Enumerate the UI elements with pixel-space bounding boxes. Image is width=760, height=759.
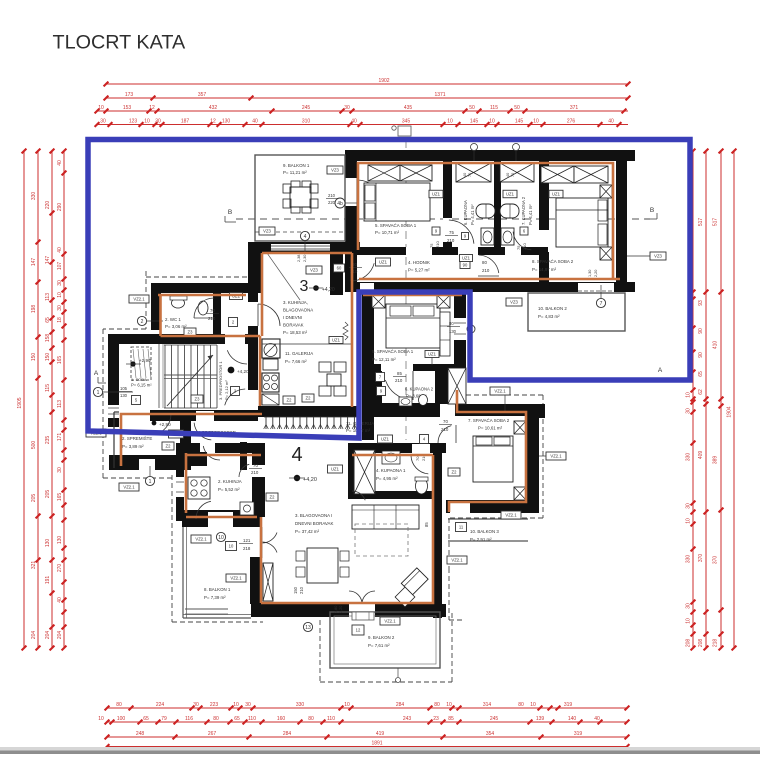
svg-text:370: 370 xyxy=(713,556,719,565)
svg-text:158: 158 xyxy=(45,334,51,343)
svg-text:435: 435 xyxy=(404,105,413,111)
svg-text:210: 210 xyxy=(208,316,216,321)
svg-text:8. SPAVAĆA SOBA 2: 8. SPAVAĆA SOBA 2 xyxy=(532,259,574,264)
svg-text:150: 150 xyxy=(293,586,298,594)
svg-text:I DNEVNI: I DNEVNI xyxy=(283,315,302,320)
svg-text:432: 432 xyxy=(209,105,218,111)
svg-text:50: 50 xyxy=(514,105,520,111)
svg-text:10. BALKON 3: 10. BALKON 3 xyxy=(470,529,499,534)
svg-text:153: 153 xyxy=(123,105,132,111)
svg-text:P= 10,71 m²: P= 10,71 m² xyxy=(375,230,400,235)
svg-text:198: 198 xyxy=(31,305,37,314)
svg-text:P= 7,66 m²: P= 7,66 m² xyxy=(285,359,307,364)
svg-text:VZ3: VZ3 xyxy=(510,300,518,305)
svg-text:270: 270 xyxy=(57,564,63,573)
svg-text:1: 1 xyxy=(149,479,152,485)
svg-text:P= 7,61 m²: P= 7,61 m² xyxy=(368,643,390,648)
svg-text:284: 284 xyxy=(396,702,405,708)
svg-text:85: 85 xyxy=(424,522,429,527)
svg-text:62: 62 xyxy=(698,389,704,395)
svg-text:204: 204 xyxy=(45,631,51,640)
svg-text:23: 23 xyxy=(433,716,439,722)
svg-text:147: 147 xyxy=(45,256,51,265)
svg-text:10: 10 xyxy=(144,119,150,125)
svg-text:30: 30 xyxy=(245,702,251,708)
svg-text:P= 6,15 m²: P= 6,15 m² xyxy=(131,383,152,388)
svg-text:75: 75 xyxy=(449,230,454,235)
svg-text:218: 218 xyxy=(243,546,251,551)
svg-text:80: 80 xyxy=(482,260,487,265)
svg-text:210: 210 xyxy=(395,378,403,383)
svg-text:165: 165 xyxy=(57,356,63,365)
svg-text:30: 30 xyxy=(57,467,63,473)
svg-text:223: 223 xyxy=(210,702,219,708)
svg-text:10: 10 xyxy=(218,535,224,541)
svg-text:30: 30 xyxy=(100,119,106,125)
svg-text:371: 371 xyxy=(570,105,579,111)
svg-text:10: 10 xyxy=(98,105,104,111)
svg-text:2,38: 2,38 xyxy=(297,255,301,262)
svg-text:7. KUPAONA 2: 7. KUPAONA 2 xyxy=(521,196,526,225)
svg-text:30: 30 xyxy=(344,105,350,111)
svg-text:11. GALERIJA: 11. GALERIJA xyxy=(285,351,313,356)
svg-text:105: 105 xyxy=(120,386,128,391)
svg-text:145: 145 xyxy=(515,119,524,125)
svg-text:224: 224 xyxy=(156,702,165,708)
svg-text:VZ2.1: VZ2.1 xyxy=(230,576,242,581)
svg-text:187: 187 xyxy=(181,119,190,125)
svg-text:100: 100 xyxy=(117,716,126,722)
svg-text:VZ2.1: VZ2.1 xyxy=(451,558,463,563)
svg-text:4. KUPAONA 1: 4. KUPAONA 1 xyxy=(376,468,406,473)
svg-text:248: 248 xyxy=(136,731,145,737)
svg-text:79: 79 xyxy=(161,716,167,722)
svg-text:80: 80 xyxy=(518,702,524,708)
svg-text:3. BLAGOVAONA I: 3. BLAGOVAONA I xyxy=(295,513,332,518)
svg-text:330: 330 xyxy=(296,702,305,708)
svg-text:2. WC 1: 2. WC 1 xyxy=(165,317,181,322)
svg-text:113: 113 xyxy=(45,293,51,301)
svg-text:VZ2.1: VZ2.1 xyxy=(550,454,562,459)
svg-text:30: 30 xyxy=(686,603,692,609)
svg-text:75: 75 xyxy=(429,243,434,248)
svg-text:204: 204 xyxy=(57,631,63,640)
svg-text:90: 90 xyxy=(463,263,468,268)
svg-text:UZ1: UZ1 xyxy=(552,192,561,197)
svg-text:276: 276 xyxy=(567,119,576,125)
svg-text:40: 40 xyxy=(351,119,357,125)
svg-text:500: 500 xyxy=(31,441,37,450)
svg-text:314: 314 xyxy=(483,702,492,708)
svg-text:13: 13 xyxy=(305,625,311,631)
svg-text:330: 330 xyxy=(686,555,692,564)
svg-text:10: 10 xyxy=(446,702,452,708)
svg-text:220: 220 xyxy=(328,200,336,205)
svg-text:VZ2.1: VZ2.1 xyxy=(123,485,135,490)
svg-text:8. BALKON 1: 8. BALKON 1 xyxy=(204,587,231,592)
svg-text:9. BALKON 2: 9. BALKON 2 xyxy=(368,635,395,640)
svg-text:165: 165 xyxy=(57,493,63,502)
svg-text:130: 130 xyxy=(45,539,51,548)
svg-text:90: 90 xyxy=(698,328,704,334)
svg-text:65: 65 xyxy=(234,716,240,722)
svg-text:Z2: Z2 xyxy=(452,470,458,475)
svg-text:VZ3: VZ3 xyxy=(331,168,339,173)
svg-text:P= 12,11 m²: P= 12,11 m² xyxy=(372,357,396,362)
svg-text:UZ1: UZ1 xyxy=(462,256,471,261)
svg-text:30: 30 xyxy=(57,280,63,286)
svg-text:30: 30 xyxy=(686,503,692,509)
svg-text:10: 10 xyxy=(686,518,692,524)
svg-text:267: 267 xyxy=(208,731,217,737)
svg-text:210: 210 xyxy=(251,470,259,475)
svg-text:50: 50 xyxy=(469,105,475,111)
svg-text:517: 517 xyxy=(698,218,704,227)
svg-text:321: 321 xyxy=(31,561,37,570)
svg-text:93: 93 xyxy=(698,300,704,306)
svg-text:+2,90: +2,90 xyxy=(139,358,151,363)
svg-text:10: 10 xyxy=(233,702,239,708)
svg-text:70: 70 xyxy=(511,173,515,177)
svg-text:40: 40 xyxy=(57,597,63,603)
svg-text:VZ3: VZ3 xyxy=(654,254,662,259)
svg-text:245: 245 xyxy=(490,716,499,722)
svg-text:290: 290 xyxy=(57,203,63,212)
svg-text:30: 30 xyxy=(193,702,199,708)
svg-text:BLAGOVAONA: BLAGOVAONA xyxy=(283,308,313,313)
svg-text:130: 130 xyxy=(222,119,231,125)
svg-text:1,30: 1,30 xyxy=(588,270,592,277)
svg-text:210: 210 xyxy=(435,241,440,248)
svg-text:A: A xyxy=(94,370,99,377)
svg-text:419: 419 xyxy=(376,731,385,737)
svg-text:7: 7 xyxy=(600,301,603,307)
svg-text:P= 2,12 m²: P= 2,12 m² xyxy=(224,380,229,400)
svg-text:2. KUHINJA: 2. KUHINJA xyxy=(218,479,242,484)
svg-text:1904: 1904 xyxy=(727,406,733,417)
svg-text:75: 75 xyxy=(516,245,521,250)
svg-text:10: 10 xyxy=(686,392,692,398)
svg-text:10: 10 xyxy=(530,702,536,708)
svg-text:204: 204 xyxy=(31,631,37,640)
svg-text:116: 116 xyxy=(185,716,193,722)
svg-text:90: 90 xyxy=(698,352,704,358)
svg-text:Z3: Z3 xyxy=(188,330,194,335)
svg-text:85: 85 xyxy=(397,371,402,376)
svg-text:UZ1: UZ1 xyxy=(331,467,340,472)
svg-text:1. SOBA: 1. SOBA xyxy=(131,377,147,382)
svg-text:139: 139 xyxy=(536,716,545,722)
svg-text:4. HODNIK: 4. HODNIK xyxy=(408,260,430,265)
svg-text:2,20: 2,20 xyxy=(339,606,343,613)
svg-text:3. KUHINJA,: 3. KUHINJA, xyxy=(283,300,308,305)
svg-text:370: 370 xyxy=(698,554,704,563)
svg-text:191: 191 xyxy=(45,576,51,585)
svg-text:65: 65 xyxy=(45,317,51,323)
svg-text:110: 110 xyxy=(327,716,335,722)
svg-text:UZ1: UZ1 xyxy=(332,338,341,343)
svg-text:319: 319 xyxy=(564,702,573,708)
svg-text:Z2: Z2 xyxy=(306,396,312,401)
svg-text:123: 123 xyxy=(129,119,138,125)
svg-text:40: 40 xyxy=(608,119,614,125)
svg-text:210: 210 xyxy=(482,268,490,273)
svg-text:150: 150 xyxy=(31,353,37,362)
svg-text:80: 80 xyxy=(213,716,219,722)
svg-text:130: 130 xyxy=(57,536,63,545)
svg-text:4: 4 xyxy=(304,234,307,240)
svg-text:+4,20: +4,20 xyxy=(303,477,317,483)
svg-text:205: 205 xyxy=(45,490,51,499)
svg-text:11: 11 xyxy=(459,525,464,530)
svg-text:30: 30 xyxy=(155,119,161,125)
svg-text:205: 205 xyxy=(31,494,37,503)
svg-text:Z2: Z2 xyxy=(166,444,172,449)
svg-text:VZ2.1: VZ2.1 xyxy=(195,537,207,542)
svg-text:P= 11,21 m²: P= 11,21 m² xyxy=(283,170,307,175)
svg-text:P= 4,41 m²: P= 4,41 m² xyxy=(528,204,533,225)
svg-text:115: 115 xyxy=(490,105,498,111)
svg-text:245: 245 xyxy=(302,105,311,111)
svg-text:410: 410 xyxy=(713,341,719,350)
svg-text:70: 70 xyxy=(210,308,215,313)
svg-text:P= 14,97 m²: P= 14,97 m² xyxy=(532,267,557,272)
svg-text:BORAVAK: BORAVAK xyxy=(283,323,304,328)
svg-text:147: 147 xyxy=(31,258,37,267)
svg-text:284: 284 xyxy=(283,731,292,737)
svg-text:P= 5,27 m²: P= 5,27 m² xyxy=(408,268,430,273)
svg-text:2. SPREMIŠTE: 2. SPREMIŠTE xyxy=(122,436,152,441)
svg-text:80: 80 xyxy=(116,702,122,708)
svg-text:345: 345 xyxy=(402,119,411,125)
svg-text:517: 517 xyxy=(713,218,719,227)
svg-text:TLOCRT KATA: TLOCRT KATA xyxy=(53,31,186,53)
svg-text:65: 65 xyxy=(698,371,704,377)
svg-text:10: 10 xyxy=(533,119,539,125)
svg-text:4: 4 xyxy=(291,444,302,466)
svg-text:P= 3,89 m²: P= 3,89 m² xyxy=(122,444,144,449)
svg-text:150: 150 xyxy=(45,353,51,362)
svg-text:40: 40 xyxy=(252,119,258,125)
svg-text:357: 357 xyxy=(198,92,207,98)
svg-text:18: 18 xyxy=(57,317,63,323)
svg-text:80: 80 xyxy=(434,702,440,708)
svg-text:210: 210 xyxy=(328,193,336,198)
svg-text:160: 160 xyxy=(277,716,286,722)
svg-text:107: 107 xyxy=(57,262,63,271)
svg-text:130: 130 xyxy=(449,329,457,334)
svg-text:113: 113 xyxy=(57,400,63,408)
svg-text:1,80: 1,80 xyxy=(334,606,338,613)
svg-text:2: 2 xyxy=(141,319,144,325)
svg-text:70: 70 xyxy=(253,463,258,468)
svg-text:VZ2.1: VZ2.1 xyxy=(133,297,145,302)
svg-text:6. KUPAONA 2: 6. KUPAONA 2 xyxy=(405,387,434,392)
svg-text:VZ2.1: VZ2.1 xyxy=(505,513,517,518)
svg-text:10: 10 xyxy=(447,119,453,125)
svg-text:VZ2.1: VZ2.1 xyxy=(494,389,506,394)
svg-text:243: 243 xyxy=(403,716,412,722)
svg-text:+4,20: +4,20 xyxy=(322,287,335,293)
svg-text:VZ3: VZ3 xyxy=(263,229,271,234)
svg-text:140: 140 xyxy=(568,716,577,722)
svg-text:235: 235 xyxy=(45,436,51,445)
svg-text:10: 10 xyxy=(686,618,692,624)
svg-text:12: 12 xyxy=(210,119,216,125)
svg-text:UZ1: UZ1 xyxy=(428,352,437,357)
svg-text:Z2: Z2 xyxy=(270,495,276,500)
svg-text:10: 10 xyxy=(57,292,63,298)
svg-text:P= 37,42 m²: P= 37,42 m² xyxy=(295,529,320,534)
svg-text:B: B xyxy=(228,209,232,216)
svg-text:P= 4,83 m²: P= 4,83 m² xyxy=(538,314,560,319)
svg-text:40: 40 xyxy=(594,716,600,722)
svg-text:85: 85 xyxy=(448,716,454,722)
svg-text:130: 130 xyxy=(120,393,128,398)
svg-text:208: 208 xyxy=(686,639,692,648)
svg-text:10: 10 xyxy=(98,716,104,722)
svg-text:P= 4,41 m²: P= 4,41 m² xyxy=(470,204,475,225)
svg-text:2,30: 2,30 xyxy=(303,255,307,262)
svg-text:Z3: Z3 xyxy=(195,397,201,402)
svg-text:40: 40 xyxy=(57,247,63,253)
svg-text:218: 218 xyxy=(713,639,719,648)
svg-text:210: 210 xyxy=(299,586,304,594)
svg-text:208: 208 xyxy=(698,639,704,648)
svg-text:1: 1 xyxy=(97,390,100,396)
svg-text:10: 10 xyxy=(344,702,350,708)
svg-text:2,20: 2,20 xyxy=(594,270,598,277)
svg-text:40: 40 xyxy=(463,173,467,177)
svg-text:12: 12 xyxy=(356,628,361,633)
svg-text:171: 171 xyxy=(57,433,63,442)
svg-text:10: 10 xyxy=(229,544,234,549)
svg-text:10: 10 xyxy=(489,119,495,125)
svg-text:330: 330 xyxy=(686,453,692,462)
svg-text:40: 40 xyxy=(57,160,63,166)
svg-text:UZ1: UZ1 xyxy=(379,260,388,265)
svg-text:3: 3 xyxy=(300,278,309,295)
svg-text:310: 310 xyxy=(302,119,311,125)
svg-text:VZ3: VZ3 xyxy=(310,268,318,273)
svg-text:VZ2.1: VZ2.1 xyxy=(384,619,396,624)
svg-text:389: 389 xyxy=(713,456,719,465)
svg-text:B: B xyxy=(650,207,654,214)
svg-text:80: 80 xyxy=(449,321,454,326)
svg-text:70: 70 xyxy=(415,456,420,461)
svg-text:P= 5,52 m²: P= 5,52 m² xyxy=(218,487,240,492)
svg-text:3. PREDPROSTOR 1: 3. PREDPROSTOR 1 xyxy=(218,361,223,400)
svg-text:220: 220 xyxy=(45,201,51,210)
svg-text:UZ1: UZ1 xyxy=(506,192,515,197)
svg-text:319: 319 xyxy=(574,731,583,737)
svg-text:1891: 1891 xyxy=(371,741,382,747)
svg-text:70: 70 xyxy=(443,419,448,424)
svg-text:P= 4,95 m²: P= 4,95 m² xyxy=(376,476,398,481)
svg-text:210: 210 xyxy=(522,243,527,250)
svg-text:110: 110 xyxy=(248,716,256,722)
svg-text:409: 409 xyxy=(698,451,704,460)
svg-text:70: 70 xyxy=(468,173,472,177)
svg-text:6. KUPAONA: 6. KUPAONA xyxy=(463,200,468,225)
svg-text:P= 7,39 m²: P= 7,39 m² xyxy=(204,595,226,600)
svg-text:UZ1: UZ1 xyxy=(432,192,441,197)
svg-text:12: 12 xyxy=(149,105,155,111)
svg-text:65: 65 xyxy=(143,716,149,722)
svg-text:121: 121 xyxy=(243,538,251,543)
svg-text:5. SPAVAĆA SOBA 1: 5. SPAVAĆA SOBA 1 xyxy=(372,349,414,354)
svg-text:40: 40 xyxy=(506,173,510,177)
svg-text:145: 145 xyxy=(470,119,479,125)
svg-text:30: 30 xyxy=(686,408,692,414)
svg-text:7. SPAVAĆA SOBA 2: 7. SPAVAĆA SOBA 2 xyxy=(468,418,510,423)
svg-text:354: 354 xyxy=(486,731,495,737)
svg-text:10. BALKON 2: 10. BALKON 2 xyxy=(538,306,567,311)
svg-text:173: 173 xyxy=(125,92,134,98)
svg-text:UZ1: UZ1 xyxy=(381,437,390,442)
svg-text:P= 10,61 m²: P= 10,61 m² xyxy=(478,426,503,431)
svg-text:Z2: Z2 xyxy=(287,398,293,403)
svg-text:5. SPAVAĆA SOBA 1: 5. SPAVAĆA SOBA 1 xyxy=(375,223,417,228)
svg-text:A: A xyxy=(658,367,663,374)
svg-text:210: 210 xyxy=(447,238,455,243)
svg-text:30: 30 xyxy=(57,305,63,311)
svg-text:1902: 1902 xyxy=(378,78,389,84)
svg-text:330: 330 xyxy=(31,192,37,201)
svg-text:60: 60 xyxy=(337,266,342,271)
svg-text:P= 18,53 m²: P= 18,53 m² xyxy=(283,330,308,335)
svg-text:115: 115 xyxy=(45,384,51,392)
svg-text:1371: 1371 xyxy=(434,92,445,98)
svg-text:9. BALKON 1: 9. BALKON 1 xyxy=(283,163,310,168)
svg-text:+4,20: +4,20 xyxy=(237,369,249,374)
svg-text:80: 80 xyxy=(308,716,314,722)
svg-text:4b: 4b xyxy=(337,201,343,207)
svg-text:1905: 1905 xyxy=(17,397,23,408)
svg-text:DNEVNI BORAVAK: DNEVNI BORAVAK xyxy=(295,521,333,526)
svg-text:P= 2,91 m²: P= 2,91 m² xyxy=(470,537,492,542)
